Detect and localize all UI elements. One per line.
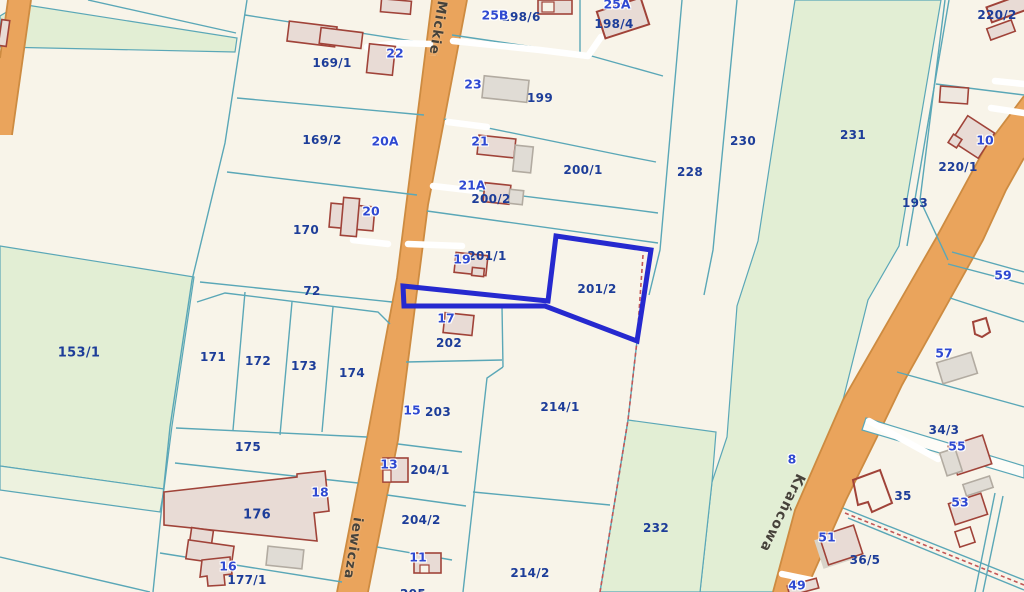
parcel-label: 172: [245, 354, 271, 368]
parcel-label-selected: 201/2: [577, 282, 616, 296]
address-label: 18: [311, 485, 328, 500]
address-label: 8: [788, 452, 797, 467]
address-label: 11: [409, 550, 426, 565]
parcel-label: 153/1: [58, 346, 100, 361]
parcel-label: 170: [293, 223, 319, 237]
green-parcel-153-1: [0, 246, 194, 489]
address-label: 51: [818, 530, 835, 545]
parcel-label: 203: [425, 405, 451, 419]
address-label: 23: [464, 77, 481, 92]
parcel-label: 174: [339, 366, 365, 380]
street-name-mickiewicza-bottom: Mickiewicza: [326, 518, 378, 592]
parcel-label: 232: [643, 521, 669, 535]
address-label: 59: [994, 268, 1011, 283]
green-parcel-232: [600, 420, 716, 592]
map-canvas[interactable]: [0, 0, 1024, 592]
building-19-step: [472, 267, 485, 276]
address-label: 10: [976, 133, 993, 148]
address-label: 17: [437, 311, 454, 326]
address-label: 22: [386, 46, 403, 61]
parcel-label: 176: [243, 508, 271, 523]
building-220-2-small: [987, 20, 1016, 40]
parcel-label: 173: [291, 359, 317, 373]
building-20-wing: [340, 197, 359, 236]
building-gray-177: [266, 546, 304, 569]
building-11-notch: [420, 565, 429, 573]
parcel-label: 72: [303, 284, 320, 298]
building-outline-35: [853, 470, 892, 512]
parcel-label: 35: [894, 489, 911, 503]
address-label: 20: [362, 204, 379, 219]
address-label: 25B: [482, 8, 509, 23]
parcel-label: 201/1: [467, 249, 506, 263]
address-label: 53: [951, 495, 968, 510]
address-label: 21: [471, 134, 488, 149]
parcel-label: 34/3: [929, 423, 960, 437]
street-name-mickiewicza-top: Mickiewicza: [420, 0, 468, 56]
green-top-band: [0, 4, 237, 52]
building-13-notch: [383, 470, 391, 482]
parcel-label: 193: [902, 196, 928, 210]
address-label: 15: [403, 403, 420, 418]
address-label: 49: [788, 578, 805, 592]
building-23: [482, 76, 529, 103]
building-21-annex: [513, 145, 534, 173]
parcel-label: 169/1: [312, 56, 351, 70]
parcel-label: 169/2: [302, 133, 341, 147]
parcel-label: 231: [840, 128, 866, 142]
building-53-outline: [955, 527, 975, 547]
address-label: 57: [935, 346, 952, 361]
building-193: [939, 86, 968, 104]
address-label: 13: [380, 457, 397, 472]
parcel-label: 228: [677, 165, 703, 179]
building: [380, 0, 411, 14]
parcel-label: 214/2: [510, 566, 549, 580]
parcel-label: 198/4: [594, 17, 633, 31]
parcel-label: 230: [730, 134, 756, 148]
parcel-label: 200/2: [471, 192, 510, 206]
address-label: 21A: [458, 178, 485, 193]
parcel-label: 36/5: [850, 553, 881, 567]
parcel-label: 171: [200, 350, 226, 364]
parcel-label: 204/1: [410, 463, 449, 477]
address-label: 55: [948, 439, 965, 454]
address-label: 16: [219, 559, 236, 574]
building-176: [164, 471, 329, 541]
address-label: 25A: [603, 0, 630, 12]
address-label: 20A: [371, 134, 398, 149]
parcel-label: 220/2: [977, 8, 1016, 22]
parcel-label: 199: [527, 91, 553, 105]
building-outline-heart: [973, 318, 990, 337]
parcel-label: 220/1: [938, 160, 977, 174]
parcel-label: 204/2: [401, 513, 440, 527]
building-25b-inner: [542, 2, 554, 12]
parcel-label: 202: [436, 336, 462, 350]
parcel-label: 205: [400, 587, 426, 592]
parcel-label: 214/1: [540, 400, 579, 414]
cadastral-map-viewport[interactable]: 169/1 169/2 170 72 153/1 171 172 173 174…: [0, 0, 1024, 592]
parcel-label: 175: [235, 440, 261, 454]
parcel-label: 177/1: [227, 573, 266, 587]
building-53-gray: [963, 476, 993, 496]
parcel-label: 200/1: [563, 163, 602, 177]
address-label: 19: [453, 252, 470, 267]
